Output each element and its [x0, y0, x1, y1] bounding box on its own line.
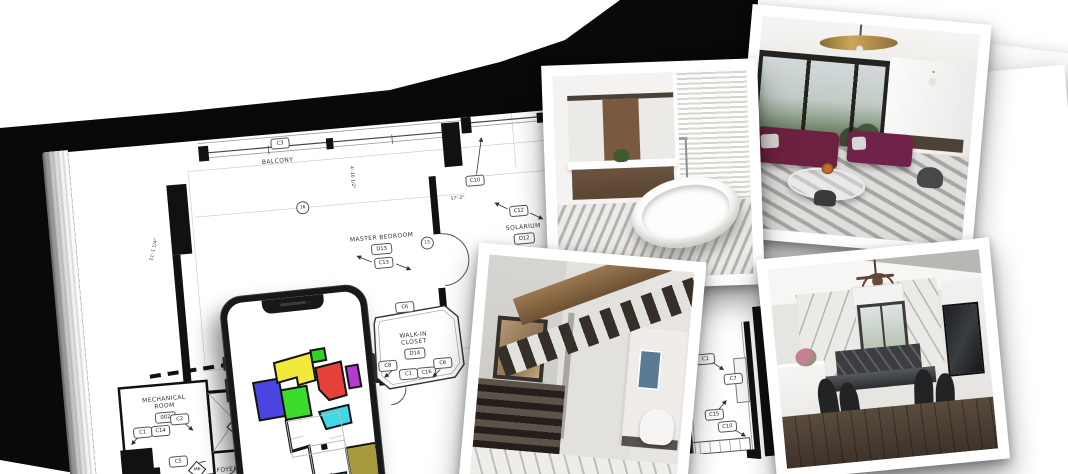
svg-text:D13: D13 — [376, 246, 387, 253]
balcony-window-wall — [163, 120, 476, 255]
tag-c3: C3 — [271, 138, 290, 150]
svg-text:C1: C1 — [702, 356, 709, 363]
tag-c7: C7 — [724, 373, 743, 385]
room-cyan — [319, 405, 352, 430]
svg-text:C7: C7 — [730, 376, 737, 383]
tag-c10-hall: C10 — [718, 421, 737, 433]
tag-c13: C13 — [374, 257, 393, 269]
master-bedroom-label: MASTER BEDROOM — [350, 231, 414, 244]
tag-c8: C8 — [378, 360, 397, 372]
svg-text:C2: C2 — [176, 416, 183, 423]
table-base — [814, 189, 838, 207]
photo-staircase — [457, 243, 706, 474]
tag-c12: C12 — [509, 205, 528, 217]
volume-button — [222, 357, 226, 371]
svg-text:002: 002 — [160, 414, 170, 421]
phone-screen — [226, 290, 383, 474]
svg-text:M6: M6 — [193, 466, 200, 473]
svg-text:C12: C12 — [513, 207, 524, 214]
speaker-slot — [280, 301, 306, 307]
svg-text:C3: C3 — [276, 140, 283, 147]
small-artwork — [637, 349, 663, 391]
tag-c2: C2 — [170, 414, 189, 426]
tag-d13: D13 — [371, 243, 392, 255]
tag-c1-hall: C1 — [696, 353, 715, 365]
pillow — [761, 133, 780, 148]
room-red — [315, 362, 347, 402]
svg-text:C10: C10 — [470, 177, 481, 184]
tag-d12: D12 — [514, 233, 535, 245]
tag-d14: D14 — [404, 348, 425, 360]
white-armchair — [639, 407, 676, 446]
dimension-4ft: 4'-10 1/2" — [348, 166, 356, 189]
dining-room-scene — [768, 249, 998, 468]
room-blue — [253, 379, 285, 421]
svg-text:D12: D12 — [519, 235, 530, 242]
smartphone — [218, 283, 389, 474]
svg-text:C10: C10 — [722, 423, 733, 430]
tag-c15: C15 — [705, 409, 724, 421]
tag-c10-solarium: C10 — [466, 175, 485, 187]
camera-dot — [306, 300, 310, 304]
collage-stage: C3 BALCONY 16 21'-1 1/4" MASTER — [0, 0, 1068, 474]
flower-bouquet — [821, 163, 834, 175]
svg-text:C8: C8 — [384, 363, 391, 370]
bonsai-plant — [613, 149, 629, 162]
svg-text:16: 16 — [300, 204, 306, 210]
burgundy-sofa-right — [846, 130, 914, 167]
room-green — [281, 386, 312, 420]
staircase-scene — [469, 254, 694, 474]
bathroom-scene — [552, 70, 753, 281]
door-tag-15: 15 — [421, 237, 434, 250]
doorway-room — [619, 327, 688, 451]
svg-text:C15: C15 — [709, 411, 720, 418]
room-magenta — [346, 365, 362, 389]
tag-c1-mech: C1 — [133, 427, 152, 439]
phone-notch — [261, 294, 324, 314]
photo-dining-room — [756, 237, 1010, 474]
tag-c6-right: C6 — [433, 357, 452, 369]
balcony-label: BALCONY — [262, 156, 294, 166]
dimension-17-2: 17'-2" — [450, 195, 464, 202]
svg-text:C13: C13 — [379, 259, 390, 266]
svg-text:15: 15 — [424, 239, 430, 245]
pillow — [851, 136, 866, 149]
tag-c1-closet: C1 — [399, 368, 418, 380]
room-lime — [310, 348, 326, 362]
tag-c5: C5 — [169, 456, 188, 468]
svg-text:C5: C5 — [175, 458, 182, 465]
svg-text:C14: C14 — [155, 427, 166, 434]
door-tag-16: 16 — [296, 201, 309, 214]
wall-tv — [942, 302, 985, 377]
tag-c14: C14 — [151, 425, 170, 437]
photo-living-room — [732, 4, 991, 258]
phone-floor-plan — [228, 312, 382, 474]
svg-text:D14: D14 — [409, 350, 421, 357]
dimension-21ft: 21'-1 1/4" — [148, 238, 159, 261]
tag-c6-top: C6 — [395, 301, 414, 313]
svg-text:C6: C6 — [439, 360, 446, 367]
pendant-light — [928, 77, 937, 86]
living-room-scene — [744, 16, 980, 246]
svg-text:C16: C16 — [421, 369, 432, 376]
solarium-label: SOLARIUM — [506, 222, 541, 232]
svg-text:C1: C1 — [405, 371, 412, 378]
lower-stair-flight — [473, 378, 565, 454]
room-olive — [346, 443, 381, 474]
svg-text:C1: C1 — [139, 429, 146, 436]
svg-text:C6: C6 — [401, 304, 408, 311]
